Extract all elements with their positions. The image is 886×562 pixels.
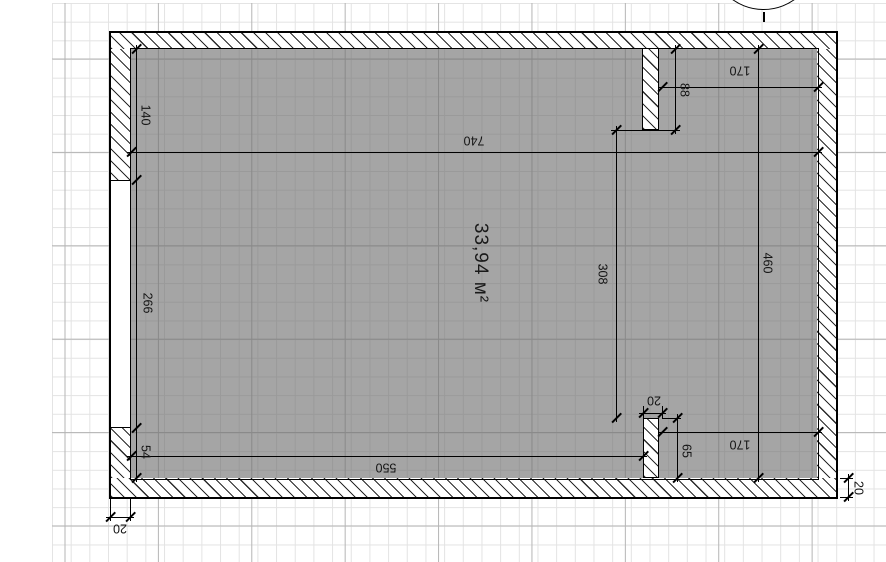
dim-line-170-bottom[interactable] <box>658 432 822 433</box>
dim-label-740[interactable]: 740 <box>464 134 485 147</box>
partition-bottom[interactable] <box>643 418 659 478</box>
partition-top[interactable] <box>642 48 659 130</box>
dim-line-65[interactable] <box>677 414 678 482</box>
room-area-label[interactable]: 33,94 м² <box>469 223 491 303</box>
dim-label-460[interactable]: 460 <box>761 253 774 274</box>
dim-line-550[interactable] <box>127 456 647 457</box>
dim-label-54[interactable]: 54 <box>139 445 152 459</box>
dim-line-left-chain[interactable] <box>136 45 137 482</box>
dim-label-308[interactable]: 308 <box>596 264 609 285</box>
extension-line <box>611 130 680 131</box>
dim-label-170-bottom[interactable]: 170 <box>730 438 751 451</box>
dim-line-740[interactable] <box>127 152 822 153</box>
dim-line-88[interactable] <box>675 45 676 134</box>
dim-label-170-top[interactable]: 170 <box>730 64 751 77</box>
dim-line-460[interactable] <box>758 45 759 482</box>
dim-label-550[interactable]: 550 <box>376 461 397 474</box>
dim-label-140[interactable]: 140 <box>139 105 152 126</box>
dim-label-20-partition[interactable]: 20 <box>647 394 661 407</box>
dim-label-20-bottom-wall[interactable]: 20 <box>852 481 865 495</box>
dim-label-266[interactable]: 266 <box>141 293 154 314</box>
dim-label-65[interactable]: 65 <box>680 444 693 458</box>
dim-label-88[interactable]: 88 <box>678 83 691 97</box>
dim-label-20-left-wall[interactable]: 20 <box>113 522 127 535</box>
cad-canvas[interactable]: 140 266 54 740 550 170 88 308 460 170 20… <box>0 0 886 562</box>
reference-circle-stem <box>763 12 765 22</box>
dim-line-308[interactable] <box>616 126 617 422</box>
